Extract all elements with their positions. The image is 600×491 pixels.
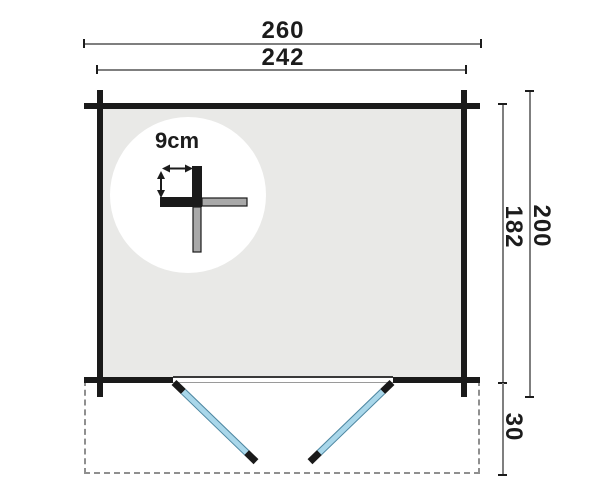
wall-thickness-label: 9cm: [137, 129, 217, 153]
wall-left: [97, 90, 103, 397]
dim-label-inner-depth: 182: [501, 197, 525, 257]
log-front-horizontal: [160, 197, 202, 207]
wall-right: [461, 90, 467, 397]
dim-tick: [83, 39, 85, 48]
dim-line-inner-width: [97, 69, 467, 71]
dim-tick: [498, 474, 507, 476]
height-arrow-icon: [157, 171, 165, 198]
dim-tick: [465, 65, 467, 74]
log-side-horizontal: [202, 198, 247, 206]
dim-tick: [525, 90, 534, 92]
dim-label-outer-depth: 200: [529, 196, 553, 256]
dim-label-inner-width: 242: [233, 46, 333, 70]
floor-plan-canvas: 260 242 9cm: [0, 0, 600, 491]
canopy-outline: [84, 380, 480, 474]
dim-tick: [525, 396, 534, 398]
wall-bottom-left: [84, 377, 173, 383]
wall-top: [84, 103, 480, 109]
wall-bottom-right: [393, 377, 480, 383]
dim-tick: [480, 39, 482, 48]
width-arrow-icon: [162, 165, 193, 173]
dim-tick: [96, 65, 98, 74]
wall-detail-callout: 9cm: [110, 117, 266, 273]
door-threshold: [173, 376, 393, 383]
dim-label-canopy-depth: 30: [501, 397, 525, 457]
dim-label-outer-width: 260: [233, 19, 333, 43]
dim-tick: [498, 103, 507, 105]
corner-joint-icon: [150, 160, 250, 255]
log-side-vertical: [193, 207, 201, 252]
